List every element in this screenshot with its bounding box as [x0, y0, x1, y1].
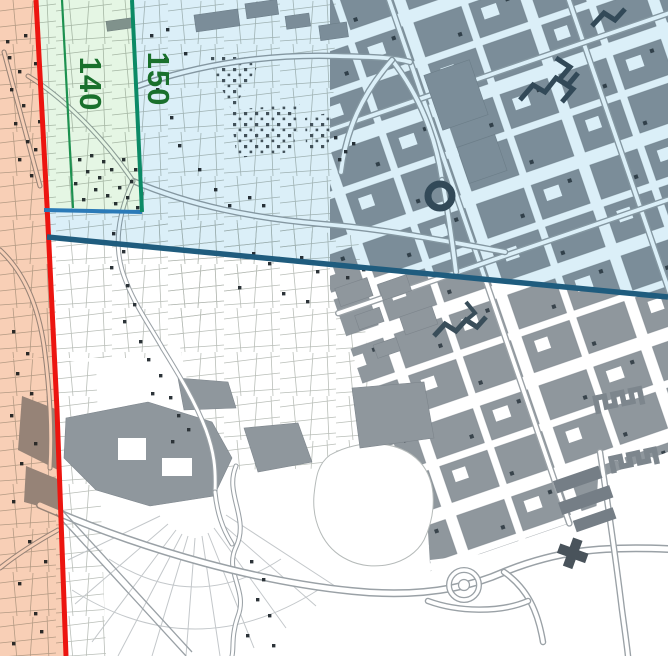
zone-label-150: 150	[141, 52, 176, 107]
park-area	[314, 444, 434, 566]
zoning-map-canvas: 140 150	[0, 0, 668, 656]
blue-zone-edge	[44, 210, 142, 212]
map-viewport: 140 150	[0, 0, 668, 656]
zone-label-140: 140	[73, 57, 108, 112]
